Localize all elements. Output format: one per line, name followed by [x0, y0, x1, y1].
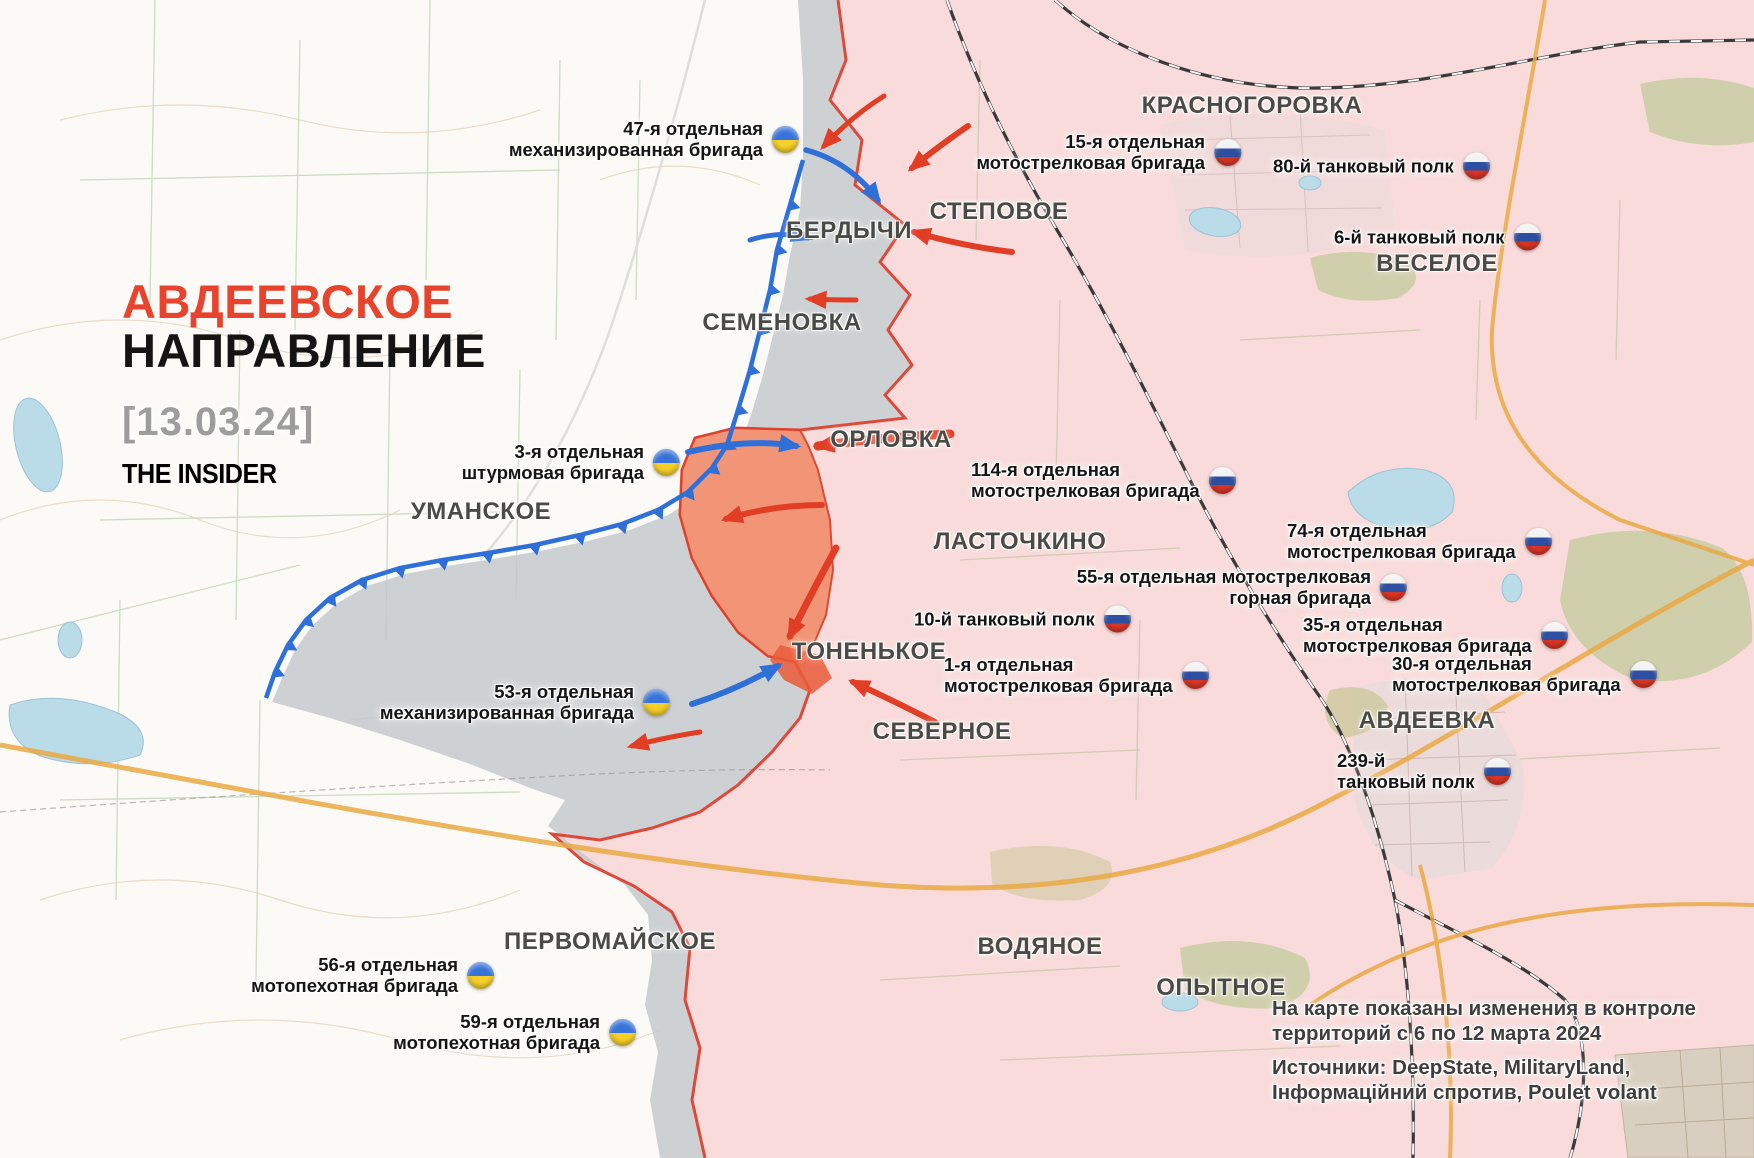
attack-arrow-red — [810, 299, 856, 300]
map-date: [13.03.24] — [122, 402, 486, 444]
town-label-stepovoe: СТЕПОВОЕ — [930, 198, 1069, 226]
unit-name: 3-я отдельнаяштурмовая бригада — [462, 441, 644, 483]
unit-label-ua-53: 53-я отдельнаямеханизированная бригада — [380, 681, 670, 723]
town-label-lastochkino: ЛАСТОЧКИНО — [934, 528, 1107, 556]
town-label-avdeevka: АВДЕЕВКА — [1359, 707, 1496, 735]
unit-name: 10-й танковый полк — [914, 609, 1095, 630]
unit-name: 30-я отдельнаямотострелковая бригада — [1392, 653, 1621, 695]
note-line3: Источники: DeepState, MilitaryLand, — [1272, 1055, 1696, 1080]
unit-label-ru-10: 10-й танковый полк — [914, 606, 1131, 633]
map-title-line1: АВДЕЕВСКОЕ — [122, 278, 486, 327]
title-block: АВДЕЕВСКОЕ НАПРАВЛЕНИЕ [13.03.24] THE IN… — [122, 278, 486, 488]
russia-flag-icon — [1484, 758, 1511, 785]
unit-label-ua-47: 47-я отдельнаямеханизированная бригада — [509, 118, 799, 160]
note-line4: Інформаційний спротив, Poulet volant — [1272, 1080, 1696, 1105]
unit-label-ru-80: 80-й танковый полк — [1273, 153, 1490, 180]
unit-label-ru-114: 114-я отдельнаямотострелковая бригада — [971, 459, 1236, 501]
unit-label-ru-74: 74-я отдельнаямотострелковая бригада — [1287, 520, 1552, 562]
unit-name: 56-я отдельнаямотопехотная бригада — [251, 954, 458, 996]
unit-label-ru-55: 55-я отдельная мотострелковаягорная бриг… — [1077, 566, 1407, 608]
unit-label-ru-6: 6-й танковый полк — [1334, 224, 1541, 251]
brand-logo: THE INSIDER — [122, 459, 449, 488]
unit-name: 35-я отдельнаямотострелковая бригада — [1303, 614, 1532, 656]
unit-name: 74-я отдельнаямотострелковая бригада — [1287, 520, 1516, 562]
unit-name: 1-я отдельнаямотострелковая бригада — [944, 654, 1173, 696]
unit-label-ru-15: 15-я отдельнаямотострелковая бригада — [976, 131, 1241, 173]
russia-flag-icon — [1380, 574, 1407, 601]
unit-label-ru-1: 1-я отдельнаямотострелковая бригада — [944, 654, 1209, 696]
unit-label-ru-35: 35-я отдельнаямотострелковая бригада — [1303, 614, 1568, 656]
russia-flag-icon — [1463, 153, 1490, 180]
map-title-line2: НАПРАВЛЕНИЕ — [122, 327, 486, 376]
town-label-umanskoe: УМАНСКОЕ — [411, 498, 551, 526]
note-line2: территорий с 6 по 12 марта 2024 — [1272, 1021, 1696, 1046]
unit-label-ru-239: 239-йтанковый полк — [1337, 750, 1511, 792]
unit-label-ua-59: 59-я отдельнаямотопехотная бригада — [393, 1011, 636, 1053]
town-label-pervomayskoe: ПЕРВОМАЙСКОЕ — [504, 928, 716, 956]
town-label-krasnogorovka: КРАСНОГОРОВКА — [1142, 92, 1363, 120]
ukraine-flag-icon — [467, 962, 494, 989]
unit-name: 53-я отдельнаямеханизированная бригада — [380, 681, 634, 723]
ukraine-flag-icon — [643, 689, 670, 716]
russia-flag-icon — [1182, 662, 1209, 689]
ukraine-flag-icon — [653, 449, 680, 476]
avdiivka-front-map: АВДЕЕВСКОЕ НАПРАВЛЕНИЕ [13.03.24] THE IN… — [0, 0, 1754, 1158]
russia-flag-icon — [1541, 622, 1568, 649]
russia-flag-icon — [1214, 139, 1241, 166]
unit-label-ua-3: 3-я отдельнаяштурмовая бригада — [462, 441, 680, 483]
unit-name: 15-я отдельнаямотострелковая бригада — [976, 131, 1205, 173]
unit-name: 6-й танковый полк — [1334, 227, 1505, 248]
ukraine-flag-icon — [609, 1019, 636, 1046]
town-label-opytnoe: ОПЫТНОЕ — [1156, 974, 1286, 1002]
note-line1: На карте показаны изменения в контроле — [1272, 996, 1696, 1021]
town-label-severnoe: СЕВЕРНОЕ — [873, 718, 1012, 746]
town-label-vodyanoe: ВОДЯНОЕ — [978, 933, 1103, 961]
unit-name: 47-я отдельнаямеханизированная бригада — [509, 118, 763, 160]
town-label-tonenkoe: ТОНЕНЬКОЕ — [792, 638, 946, 666]
unit-label-ru-30: 30-я отдельнаямотострелковая бригада — [1392, 653, 1657, 695]
russia-flag-icon — [1514, 224, 1541, 251]
russia-flag-icon — [1525, 528, 1552, 555]
russia-flag-icon — [1104, 606, 1131, 633]
unit-name: 59-я отдельнаямотопехотная бригада — [393, 1011, 600, 1053]
ukraine-flag-icon — [772, 126, 799, 153]
unit-name: 80-й танковый полк — [1273, 156, 1454, 177]
unit-name: 239-йтанковый полк — [1337, 750, 1475, 792]
town-label-orlovka: ОРЛОВКА — [830, 426, 951, 454]
town-label-berdychi: БЕРДЫЧИ — [786, 217, 912, 245]
unit-label-ua-56: 56-я отдельнаямотопехотная бригада — [251, 954, 494, 996]
russia-flag-icon — [1630, 661, 1657, 688]
town-label-semenovka: СЕМЕНОВКА — [702, 309, 861, 337]
source-note: На карте показаны изменения в контроле т… — [1272, 996, 1696, 1105]
town-label-veseloe: ВЕСЕЛОЕ — [1376, 250, 1498, 278]
russia-flag-icon — [1209, 467, 1236, 494]
unit-name: 114-я отдельнаямотострелковая бригада — [971, 459, 1200, 501]
unit-name: 55-я отдельная мотострелковаягорная бриг… — [1077, 566, 1371, 608]
